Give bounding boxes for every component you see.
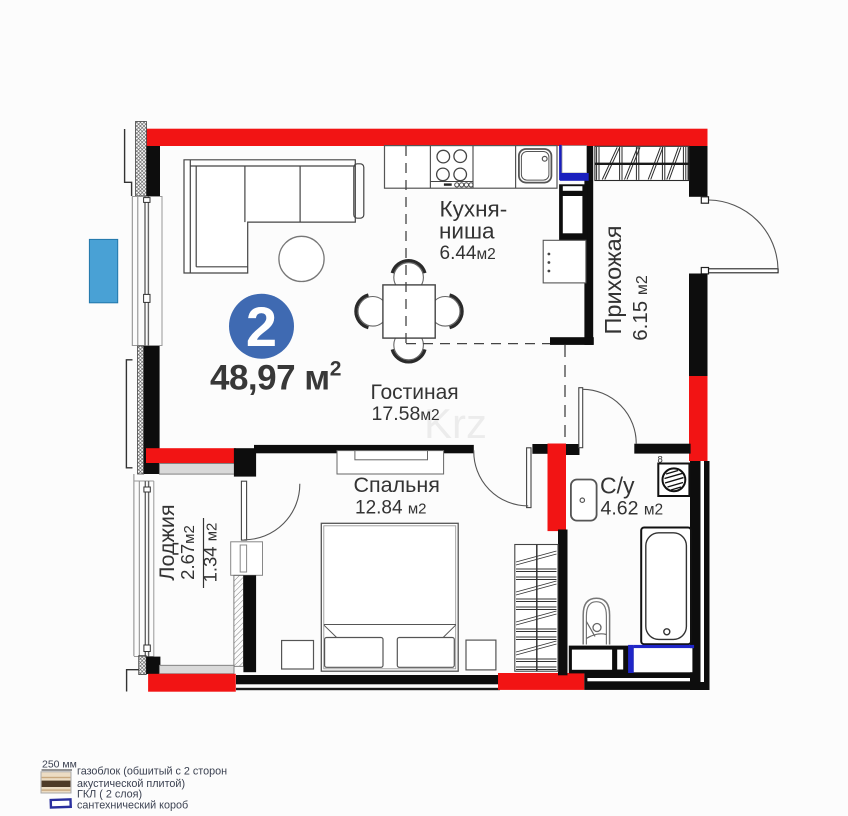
svg-text:17.58м2: 17.58м2 (372, 403, 440, 425)
svg-text:Лоджия: Лоджия (155, 504, 179, 580)
svg-text:ниша: ниша (439, 219, 495, 244)
svg-text:сантехнический короб: сантехнический короб (77, 800, 188, 812)
svg-text:12.84 м2: 12.84 м2 (355, 498, 426, 519)
svg-text:газоблок (обшитый с 2 сторон: газоблок (обшитый с 2 сторон (77, 766, 227, 778)
svg-text:4.62 м2: 4.62 м2 (601, 498, 664, 520)
svg-text:250 мм: 250 мм (42, 759, 77, 771)
svg-text:Прихожая: Прихожая (600, 226, 626, 335)
svg-text:С/у: С/у (600, 473, 635, 499)
svg-text:2: 2 (246, 295, 277, 358)
svg-text:8: 8 (658, 455, 663, 466)
svg-text:Спальня: Спальня (354, 473, 440, 497)
svg-text:6.44м2: 6.44м2 (440, 243, 496, 264)
svg-text:1.34 м2: 1.34 м2 (200, 523, 221, 583)
svg-text:Гостиная: Гостиная (371, 381, 459, 404)
svg-text:2.67м2: 2.67м2 (177, 525, 198, 580)
svg-text:48,97 м2: 48,97 м2 (210, 358, 341, 398)
